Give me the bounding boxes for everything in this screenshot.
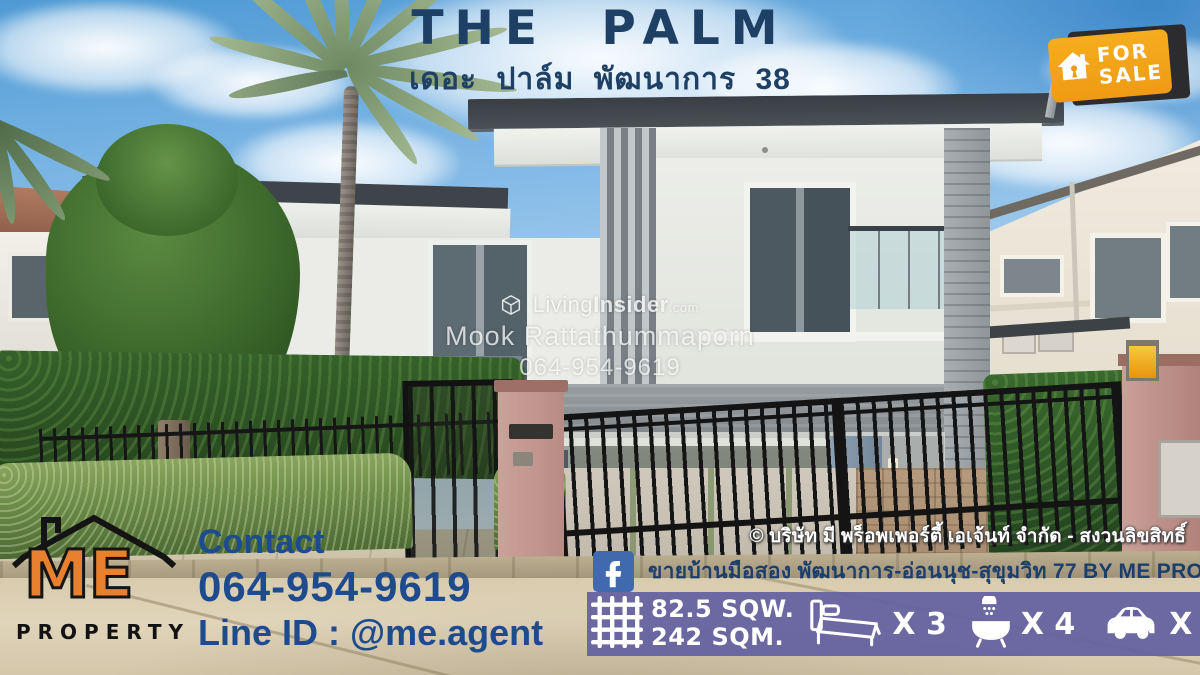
watermark-brand-prefix: Living (533, 292, 593, 317)
for-sale-text: FOR SALE (1096, 40, 1164, 89)
contact-phone: 064-954-9619 (198, 563, 543, 611)
for-sale-badge: FOR SALE (1046, 24, 1194, 112)
facebook-page-name: ขายบ้านมือสอง พัฒนาการ-อ่อนนุช-สุขุมวิท … (648, 551, 1200, 592)
page-subtitle-thai: เดอะ ปาล์ม พัฒนาการ 38 (0, 56, 1200, 103)
bedroom-count: X 3 (892, 607, 946, 642)
neighbor-right-window (1166, 222, 1200, 302)
area-figures: 82.5 SQW. 242 SQM. (651, 596, 794, 651)
contact-heading: Contact (198, 522, 543, 563)
watermark-brand: LivingInsider.com (0, 292, 1200, 318)
watermark: LivingInsider.com Mook Rattathummaporn 0… (0, 292, 1200, 382)
soffit-downlight (762, 147, 768, 153)
header-block: THE PALM เดอะ ปาล์ม พัฒนาการ 38 (0, 4, 1200, 103)
keypad-box (513, 452, 533, 466)
agency-logo-subtext: PROPERTY (16, 620, 190, 644)
bathroom-count: X 4 (1021, 607, 1075, 642)
watermark-brand-domain: .com (669, 300, 699, 315)
facebook-icon (593, 551, 634, 592)
grid-icon (591, 596, 643, 653)
for-sale-line2: SALE (1098, 61, 1164, 88)
car-icon (1101, 602, 1161, 647)
page-title: THE PALM (0, 4, 1200, 53)
contact-block: Contact 064-954-9619 Line ID : @me.agent (198, 522, 543, 654)
usable-area: 242 SQM. (651, 624, 794, 652)
tree-top (96, 124, 238, 236)
land-area: 82.5 SQW. (651, 596, 794, 624)
listing-poster: THE PALM เดอะ ปาล์ม พัฒนาการ 38 FOR SALE (0, 0, 1200, 675)
contact-line-id: Line ID : @me.agent (198, 611, 543, 654)
bed-icon (808, 597, 884, 652)
parking-count: X 2 (1169, 607, 1200, 642)
neighbor-right-window (1000, 255, 1064, 297)
letterbox (509, 424, 553, 439)
watermark-agent-name: Mook Rattathummaporn (0, 321, 1200, 352)
copyright-notice: © บริษัท มี พร็อพเพอร์ตี้ เอเจ้นท์ จำกัด… (749, 521, 1186, 551)
specs-bar: 82.5 SQW. 242 SQM. X 3 (587, 592, 1200, 656)
utility-panel (1158, 440, 1200, 518)
agency-logo-text: ME (24, 542, 133, 608)
cube-icon (501, 292, 533, 317)
sign-plate: FOR SALE (1047, 29, 1172, 103)
watermark-brand-bold: Insider (593, 292, 669, 317)
house-icon (1055, 49, 1094, 90)
watermark-agent-phone: 064-954-9619 (0, 354, 1200, 382)
bath-icon (969, 596, 1013, 653)
